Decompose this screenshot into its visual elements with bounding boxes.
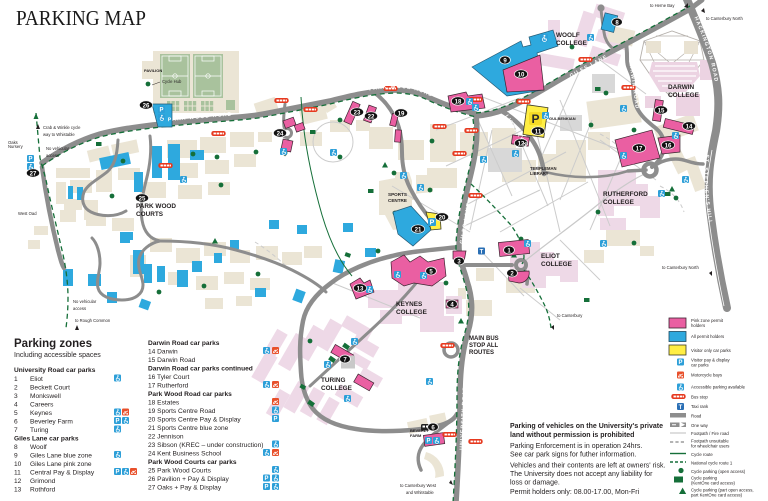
svg-text:5: 5 [14, 410, 18, 417]
svg-text:to Herne Bay: to Herne Bay [650, 3, 675, 8]
svg-text:No vehicular: No vehicular [46, 146, 70, 151]
svg-text:Taxi rank: Taxi rank [691, 404, 709, 409]
svg-text:to Canterbury: to Canterbury [557, 313, 583, 318]
svg-text:University Road car parks: University Road car parks [14, 367, 96, 374]
svg-text:and Whitstable: and Whitstable [406, 490, 434, 495]
svg-text:car parks: car parks [691, 363, 709, 368]
svg-text:All permit holders: All permit holders [691, 334, 724, 339]
svg-text:Beverley Farm: Beverley Farm [30, 419, 73, 426]
svg-text:24 Kent Business School: 24 Kent Business School [148, 451, 222, 458]
svg-text:(KentOne card access): (KentOne card access) [691, 481, 736, 486]
svg-text:19: 19 [398, 110, 405, 117]
svg-text:CENTRE: CENTRE [388, 198, 407, 203]
svg-text:LIBRARY: LIBRARY [530, 171, 549, 176]
svg-text:No vehicular: No vehicular [73, 299, 97, 304]
svg-text:access: access [46, 153, 59, 158]
svg-text:to Canterbury West: to Canterbury West [400, 483, 437, 488]
svg-text:Cycle parking (open access): Cycle parking (open access) [691, 469, 746, 474]
svg-text:Permit holders only: 08.00-17.: Permit holders only: 08.00-17.00, Mon-Fr… [510, 489, 640, 496]
svg-text:KEYNES: KEYNES [396, 301, 423, 308]
svg-text:Cycle Hub: Cycle Hub [162, 79, 182, 84]
svg-text:26: 26 [143, 102, 150, 109]
svg-text:The University does not accept: The University does not accept any liabi… [510, 471, 653, 478]
svg-text:1: 1 [14, 376, 18, 383]
svg-text:WOOLF: WOOLF [556, 32, 580, 39]
svg-text:6: 6 [14, 419, 18, 426]
svg-text:holders: holders [691, 323, 705, 328]
svg-text:10: 10 [14, 461, 22, 468]
svg-text:P: P [430, 220, 435, 227]
svg-text:Parking zones: Parking zones [14, 338, 92, 350]
svg-text:Accessible parking available: Accessible parking available [691, 385, 746, 390]
svg-text:27 Oaks + Pay & Display: 27 Oaks + Pay & Display [148, 485, 222, 492]
svg-text:3: 3 [14, 393, 18, 400]
svg-text:See car park signs for futher: See car park signs for futher informatio… [510, 452, 637, 459]
svg-text:PAVILION: PAVILION [144, 68, 162, 73]
svg-text:Motorcycle bays: Motorcycle bays [691, 373, 722, 378]
svg-text:Cycle route: Cycle route [691, 452, 713, 457]
svg-text:COLLEGE: COLLEGE [668, 92, 700, 99]
svg-text:24: 24 [277, 130, 284, 137]
svg-text:Road: Road [691, 414, 702, 419]
svg-text:Bus stop: Bus stop [691, 395, 708, 400]
svg-text:19 Sports Centre Road: 19 Sports Centre Road [148, 408, 216, 415]
svg-text:West Oad: West Oad [18, 211, 37, 216]
svg-text:17 Rutherford: 17 Rutherford [148, 383, 189, 390]
svg-text:7: 7 [14, 427, 18, 434]
svg-text:land without permission is pro: land without permission is prohibited [510, 432, 634, 439]
svg-text:COLLEGE: COLLEGE [396, 309, 428, 316]
svg-text:Parking Enforcement is in oper: Parking Enforcement is in operation 24hr… [510, 443, 642, 450]
svg-text:One way: One way [691, 423, 709, 428]
svg-text:27: 27 [30, 170, 37, 177]
svg-text:11: 11 [14, 470, 21, 477]
svg-text:P: P [531, 112, 539, 126]
svg-text:COLLEGE: COLLEGE [603, 199, 635, 206]
svg-text:Giles Lane blue zone: Giles Lane blue zone [30, 453, 92, 460]
svg-text:23: 23 [354, 109, 361, 116]
svg-text:Careers: Careers [30, 402, 54, 409]
svg-text:Giles Lane pink zone: Giles Lane pink zone [30, 461, 92, 468]
svg-text:18 Estates: 18 Estates [148, 400, 180, 407]
svg-text:Parking of vehicles on the Uni: Parking of vehicles on the University's … [510, 423, 663, 430]
svg-text:11: 11 [535, 128, 542, 135]
svg-text:Monkswell: Monkswell [30, 393, 61, 400]
svg-text:8: 8 [14, 444, 18, 451]
svg-text:way to Whistable: way to Whistable [43, 132, 75, 137]
svg-text:Giles Lane car parks: Giles Lane car parks [14, 436, 79, 443]
svg-text:23 Sibson (KREC – under constr: 23 Sibson (KREC – under construction) [148, 442, 263, 449]
svg-text:Keynes: Keynes [30, 410, 53, 417]
svg-text:13: 13 [14, 487, 22, 494]
svg-text:14 Darwin: 14 Darwin [148, 349, 178, 356]
svg-text:15: 15 [658, 107, 665, 114]
svg-text:PARKING MAP: PARKING MAP [16, 6, 146, 30]
svg-text:13: 13 [357, 285, 364, 292]
svg-text:Darwin Road car parks continue: Darwin Road car parks continued [148, 366, 253, 373]
svg-text:Central Pay & Display: Central Pay & Display [30, 470, 95, 477]
svg-text:16 Tyler Court: 16 Tyler Court [148, 374, 189, 381]
svg-text:15 Darwin Road: 15 Darwin Road [148, 357, 196, 364]
svg-text:Eliot: Eliot [30, 376, 43, 383]
svg-text:COLLEGE: COLLEGE [541, 261, 573, 268]
svg-text:TURING: TURING [321, 377, 346, 384]
svg-text:for wheelchair users: for wheelchair users [691, 444, 729, 449]
svg-text:SPORTS: SPORTS [388, 192, 407, 197]
svg-text:18: 18 [455, 98, 462, 105]
svg-text:Rothford: Rothford [30, 487, 56, 494]
svg-text:Woolf: Woolf [30, 444, 47, 451]
svg-text:MAIN BUS: MAIN BUS [469, 336, 499, 342]
svg-text:Darwin Road car parks: Darwin Road car parks [148, 340, 220, 347]
svg-text:9: 9 [14, 453, 18, 460]
svg-text:COLLEGE: COLLEGE [321, 385, 353, 392]
svg-text:Beckett Court: Beckett Court [30, 385, 70, 392]
svg-text:4: 4 [14, 402, 18, 409]
svg-text:COLLEGE: COLLEGE [556, 40, 588, 47]
svg-text:FARM: FARM [410, 433, 422, 438]
svg-text:loss or damage.: loss or damage. [510, 480, 560, 487]
svg-text:10: 10 [518, 71, 525, 78]
svg-text:Park Wood Courts car parks: Park Wood Courts car parks [148, 459, 237, 466]
svg-text:COURTS: COURTS [136, 211, 164, 218]
svg-text:Nursery: Nursery [8, 144, 24, 149]
svg-text:Footpath / Fire road: Footpath / Fire road [691, 431, 729, 436]
svg-text:Visitor only car parks: Visitor only car parks [691, 348, 731, 353]
svg-text:26 Pavilion + Pay & Display: 26 Pavilion + Pay & Display [148, 476, 230, 483]
svg-text:to Canterbury North: to Canterbury North [706, 16, 743, 21]
svg-text:part KentOne card access): part KentOne card access) [691, 493, 743, 498]
svg-text:25 Park Wood Courts: 25 Park Wood Courts [148, 468, 212, 475]
svg-text:STOP ALL: STOP ALL [469, 343, 499, 349]
svg-text:14: 14 [686, 123, 693, 130]
svg-text:20 Sports Centre Pay & Display: 20 Sports Centre Pay & Display [148, 417, 241, 424]
svg-text:ROUTES: ROUTES [469, 350, 494, 356]
svg-text:12: 12 [14, 478, 22, 485]
svg-text:22 Jennison: 22 Jennison [148, 434, 184, 441]
svg-text:PARK WOOD: PARK WOOD [136, 203, 176, 210]
svg-text:17: 17 [636, 145, 643, 152]
svg-text:Grimond: Grimond [30, 478, 56, 485]
svg-text:to Canterbury North: to Canterbury North [662, 265, 699, 270]
svg-text:21 Sports Centre blue zone: 21 Sports Centre blue zone [148, 425, 229, 432]
svg-text:22: 22 [368, 113, 375, 120]
svg-text:access: access [73, 306, 86, 311]
svg-text:to Rough Common: to Rough Common [75, 318, 111, 323]
svg-text:RUTHERFORD: RUTHERFORD [603, 191, 648, 198]
svg-text:Including accessible spaces: Including accessible spaces [14, 352, 101, 359]
svg-text:National cycle route 1: National cycle route 1 [691, 461, 733, 466]
svg-text:25: 25 [139, 195, 146, 202]
svg-text:2: 2 [14, 385, 18, 392]
svg-text:DARWIN: DARWIN [668, 84, 695, 91]
svg-text:Park Wood Road car parks: Park Wood Road car parks [148, 391, 232, 398]
svg-text:GULBENKIAN: GULBENKIAN [549, 116, 576, 121]
svg-text:ELIOT: ELIOT [541, 253, 560, 260]
svg-text:Turing: Turing [30, 427, 49, 434]
svg-text:16: 16 [665, 142, 672, 149]
svg-text:Crab & Winkle cycle: Crab & Winkle cycle [43, 125, 81, 130]
svg-text:20: 20 [439, 214, 446, 221]
svg-text:Vehicles and their contents ar: Vehicles and their contents are left at … [510, 463, 665, 470]
svg-text:21: 21 [415, 226, 422, 233]
